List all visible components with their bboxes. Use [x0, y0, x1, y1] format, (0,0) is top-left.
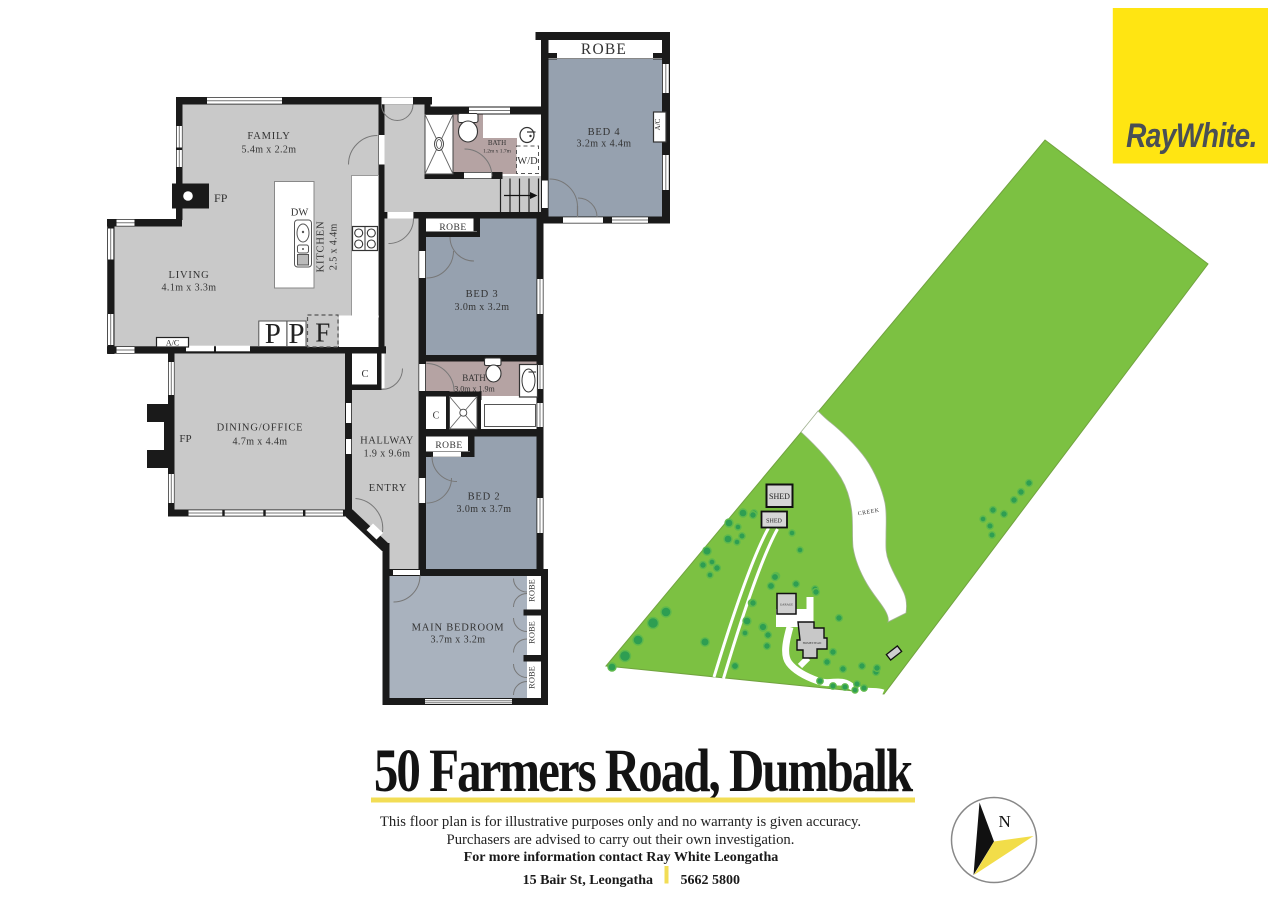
- svg-text:FAMILY: FAMILY: [247, 131, 290, 142]
- svg-text:LIVING: LIVING: [169, 270, 210, 281]
- svg-text:GARAGE: GARAGE: [780, 603, 793, 607]
- svg-text:ROBE: ROBE: [435, 441, 462, 451]
- svg-text:ENTRY: ENTRY: [369, 483, 407, 494]
- svg-text:3.0m x 3.2m: 3.0m x 3.2m: [455, 302, 510, 313]
- svg-text:FP: FP: [179, 433, 191, 445]
- svg-text:3.2m x 4.4m: 3.2m x 4.4m: [577, 139, 632, 150]
- svg-text:ROBE: ROBE: [527, 666, 537, 689]
- svg-text:P: P: [288, 318, 304, 350]
- svg-text:MAIN BEDROOM: MAIN BEDROOM: [412, 623, 505, 634]
- svg-text:4.7m x 4.4m: 4.7m x 4.4m: [233, 437, 288, 448]
- svg-text:W/D: W/D: [517, 156, 538, 167]
- svg-text:C: C: [361, 369, 368, 380]
- svg-text:3.7m x 3.2m: 3.7m x 3.2m: [431, 635, 486, 646]
- svg-text:KITCHEN: KITCHEN: [316, 221, 327, 273]
- svg-text:For more information contact R: For more information contact Ray White L…: [464, 849, 779, 865]
- svg-text:C: C: [433, 411, 440, 422]
- svg-text:HALLWAY: HALLWAY: [360, 436, 414, 447]
- svg-text:This floor plan is for illustr: This floor plan is for illustrative purp…: [380, 814, 861, 830]
- svg-text:ROBE: ROBE: [527, 621, 537, 644]
- svg-text:2.5 x 4.4m: 2.5 x 4.4m: [329, 223, 340, 270]
- svg-text:3.0m x 3.7m: 3.0m x 3.7m: [457, 504, 512, 515]
- svg-text:BED 3: BED 3: [466, 289, 499, 300]
- svg-text:A/C: A/C: [166, 338, 179, 347]
- svg-text:A/C: A/C: [654, 118, 662, 130]
- svg-text:4.1m x 3.3m: 4.1m x 3.3m: [162, 283, 217, 294]
- svg-text:50 Farmers Road, Dumbalk: 50 Farmers Road, Dumbalk: [374, 737, 913, 804]
- svg-text:HOMESTEAD: HOMESTEAD: [803, 641, 822, 645]
- svg-text:N: N: [999, 812, 1011, 831]
- svg-text:P: P: [265, 318, 281, 350]
- svg-text:1.9 x 9.6m: 1.9 x 9.6m: [364, 449, 411, 460]
- svg-text:ROBE: ROBE: [439, 223, 466, 233]
- svg-text:BATH: BATH: [488, 139, 506, 147]
- svg-text:SHED: SHED: [766, 519, 782, 525]
- svg-text:5.4m x 2.2m: 5.4m x 2.2m: [242, 145, 297, 156]
- svg-text:3.0m x 1.9m: 3.0m x 1.9m: [454, 385, 495, 394]
- svg-text:BED 4: BED 4: [588, 127, 621, 138]
- svg-text:5662 5800: 5662 5800: [681, 873, 741, 888]
- svg-text:DW: DW: [291, 208, 309, 219]
- svg-text:SHED: SHED: [769, 492, 790, 501]
- svg-text:DINING/OFFICE: DINING/OFFICE: [217, 423, 304, 434]
- svg-text:ROBE: ROBE: [527, 579, 537, 602]
- svg-text:Purchasers are advised to carr: Purchasers are advised to carry out thei…: [447, 832, 795, 848]
- svg-text:1.2m x 1.7m: 1.2m x 1.7m: [483, 149, 512, 155]
- svg-text:ROBE: ROBE: [581, 41, 627, 58]
- svg-text:BATH: BATH: [462, 373, 486, 383]
- svg-text:15 Bair St, Leongatha: 15 Bair St, Leongatha: [523, 873, 653, 888]
- svg-text:RayWhite.: RayWhite.: [1126, 116, 1257, 154]
- svg-text:BED 2: BED 2: [468, 492, 501, 503]
- svg-text:F: F: [315, 318, 330, 348]
- svg-text:FP: FP: [214, 191, 228, 205]
